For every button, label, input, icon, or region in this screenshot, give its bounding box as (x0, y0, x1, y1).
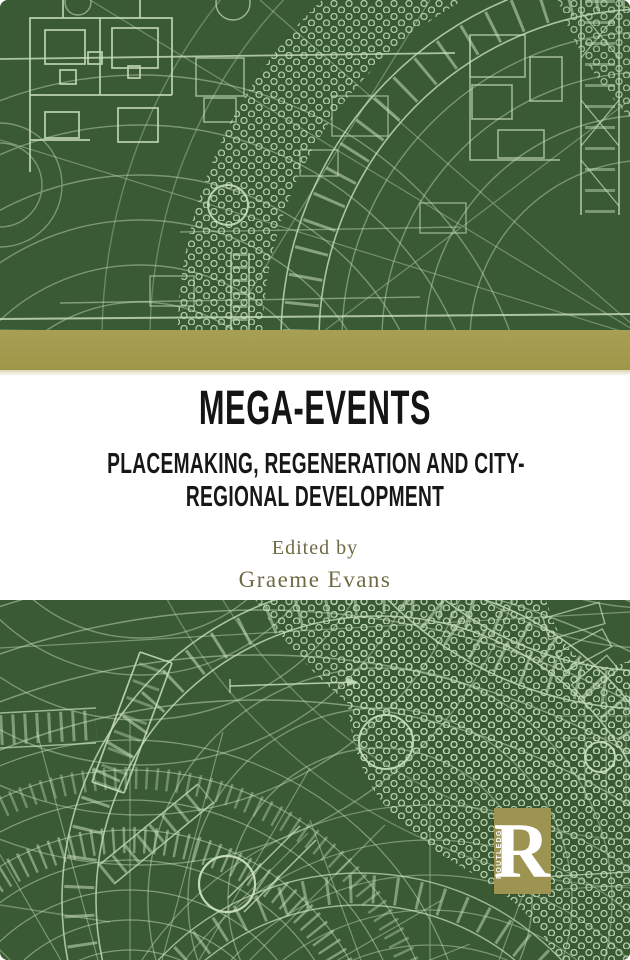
routledge-r-icon: R (494, 808, 550, 894)
edited-by-label: Edited by (0, 537, 630, 560)
subtitle-line-1: PLACEMAKING, REGENERATION AND CITY- (107, 448, 523, 480)
editor-name: Graeme Evans (0, 567, 630, 593)
gold-band (0, 330, 630, 370)
routledge-logo: ROUTLEDGE R (494, 808, 551, 894)
book-subtitle: PLACEMAKING, REGENERATION AND CITY- REGI… (0, 448, 630, 513)
book-title: MEGA-EVENTS (113, 384, 516, 434)
book-cover: MEGA-EVENTS PLACEMAKING, REGENERATION AN… (0, 0, 630, 960)
subtitle-line-2: REGIONAL DEVELOPMENT (107, 481, 523, 513)
title-panel: MEGA-EVENTS PLACEMAKING, REGENERATION AN… (0, 370, 630, 600)
